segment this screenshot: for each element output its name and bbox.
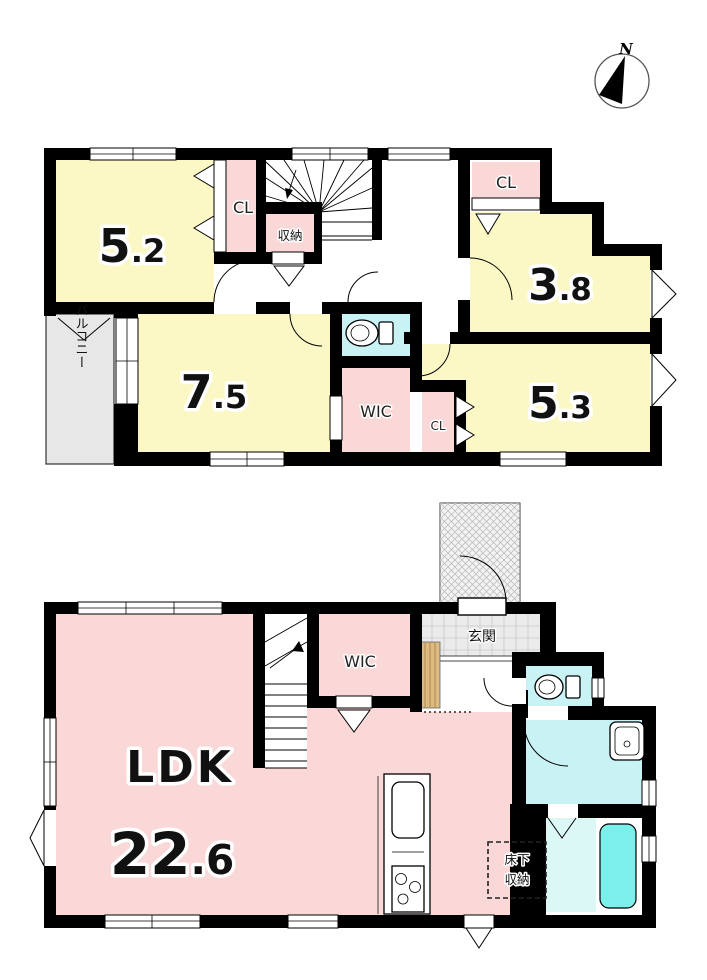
floorplan-page: N xyxy=(0,0,707,980)
washroom-door-gap xyxy=(528,706,568,720)
bath-door-gap xyxy=(548,804,578,818)
window xyxy=(105,915,200,928)
closet-2f-bottom-label: CL xyxy=(430,419,445,433)
window xyxy=(500,452,566,466)
bay-window xyxy=(650,270,676,318)
bay-window xyxy=(30,810,56,866)
window xyxy=(642,836,656,862)
window xyxy=(288,915,338,928)
floor-1f: LDK 22.6 WIC 玄関 床下 収納 xyxy=(30,503,656,948)
floor-2f: 5.2 CL 収納 CL 3.8 バルコニー 7.5 WIC CL 5.3 xyxy=(44,148,676,466)
door-v-icon xyxy=(466,928,492,948)
closet-2f-left-label: CL xyxy=(233,198,253,217)
closet-2f-left-track xyxy=(214,160,226,252)
window xyxy=(44,718,56,806)
door-arc-toilet-2f xyxy=(348,272,378,302)
window xyxy=(210,452,284,466)
floorplan-svg: N xyxy=(0,0,707,980)
door-v-icon xyxy=(274,266,304,286)
wic-2f-label: WIC xyxy=(360,402,392,421)
back-door-gap xyxy=(464,915,494,928)
entrance-door-leaf xyxy=(458,598,506,615)
bay-window xyxy=(650,354,676,406)
wic-1f-label: WIC xyxy=(344,652,376,671)
toilet-1f-door-gap xyxy=(512,678,526,704)
ldk-label: LDK xyxy=(126,742,234,793)
closet-2f-topright-track xyxy=(472,198,540,210)
storage-2f-track xyxy=(272,252,304,264)
window xyxy=(592,678,604,698)
stairs-1f xyxy=(265,614,307,768)
shower-area xyxy=(546,818,596,912)
underfloor-storage-label-2: 収納 xyxy=(504,872,529,887)
toilet-icon xyxy=(346,320,393,346)
bathtub-icon xyxy=(600,824,636,908)
kitchen-counter xyxy=(378,774,430,914)
compass: N xyxy=(595,40,649,108)
stairs-2f-arrow-icon xyxy=(285,188,293,199)
window xyxy=(388,148,450,160)
porch xyxy=(440,503,520,603)
stove-icon xyxy=(392,866,424,912)
door-arc-room-5-2 xyxy=(214,260,256,302)
compass-north-label: N xyxy=(618,40,634,58)
washbasin-icon xyxy=(610,722,644,760)
entrance-label: 玄関 xyxy=(468,628,496,645)
room-5-2 xyxy=(56,160,214,302)
shoe-cabinet xyxy=(420,642,440,708)
window xyxy=(78,602,222,614)
wic-2f-door-gap xyxy=(330,396,342,440)
window xyxy=(292,148,368,160)
toilet-icon xyxy=(535,675,580,699)
wic-1f-door-gap xyxy=(336,696,372,708)
bathroom-1f xyxy=(546,818,642,912)
storage-2f-label: 収納 xyxy=(277,228,302,243)
window xyxy=(642,780,656,806)
kitchen-sink-icon xyxy=(392,782,424,838)
underfloor-storage-label-1: 床下 xyxy=(504,852,529,867)
balcony-label: バルコニー xyxy=(73,304,89,369)
window xyxy=(116,318,138,404)
window xyxy=(90,148,176,160)
closet-2f-topright-label: CL xyxy=(496,173,516,192)
